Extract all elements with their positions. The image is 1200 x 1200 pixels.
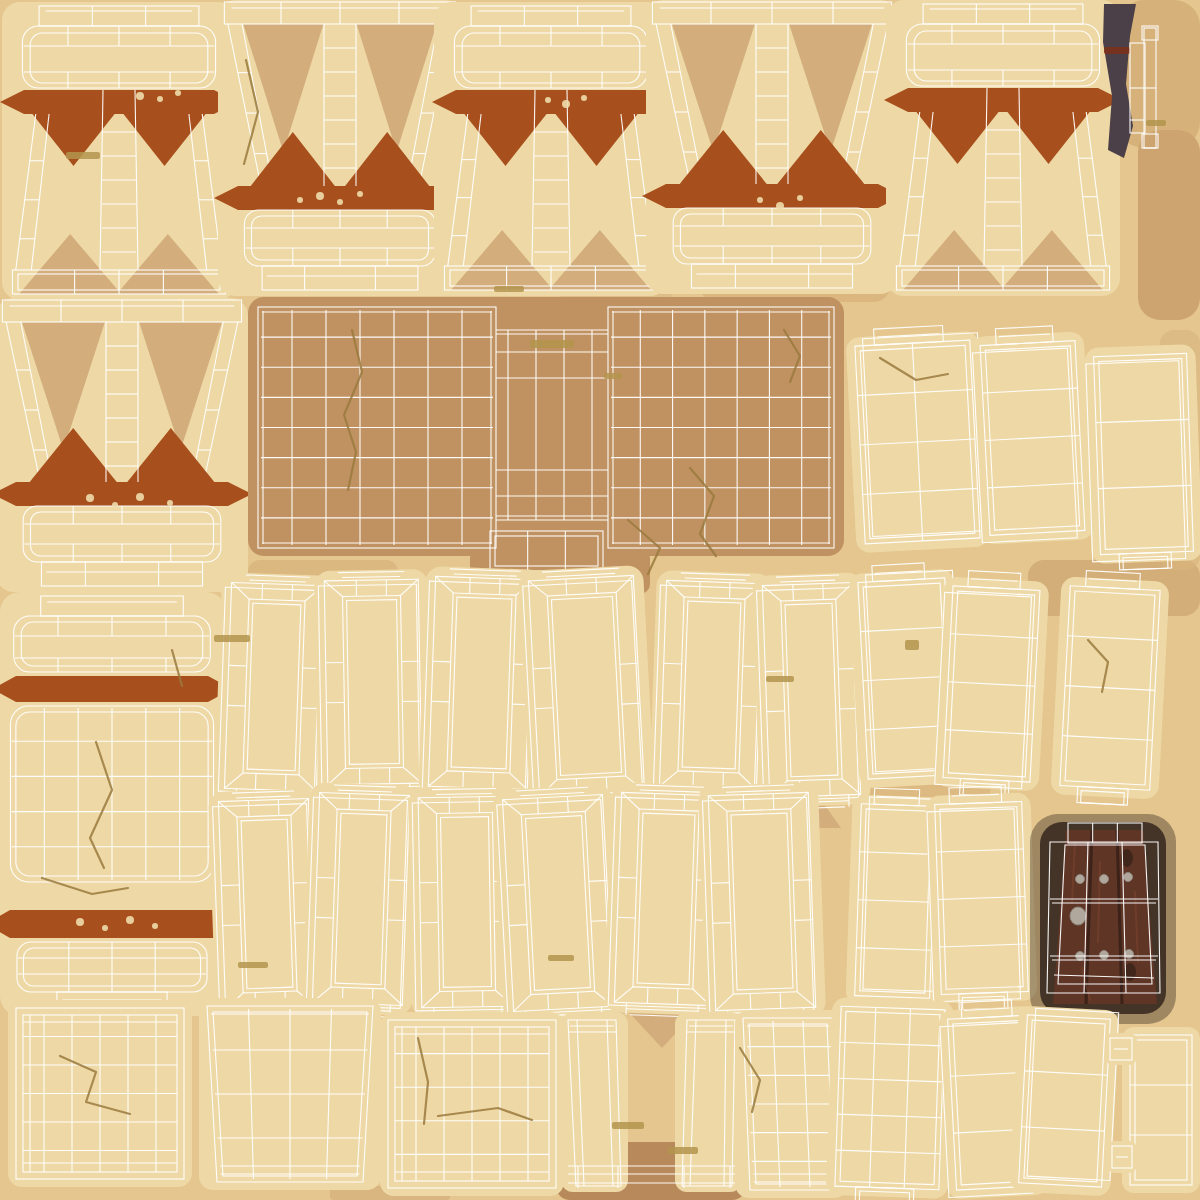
stud-icon (1070, 907, 1086, 925)
paint-speckle (102, 925, 108, 931)
wireframe-line (500, 579, 501, 595)
rust-band (0, 910, 238, 938)
paint-speckle (136, 493, 144, 501)
wireframe-line (248, 801, 249, 817)
grid-square-1 (8, 1000, 192, 1187)
paint-speckle (175, 90, 181, 96)
paint-speckle (126, 916, 134, 924)
texture-atlas-canvas (0, 0, 1200, 1200)
frame-group (698, 782, 826, 1023)
texture-dash (214, 635, 250, 642)
strip-1 (845, 324, 989, 554)
stud-icon (1076, 875, 1085, 884)
strip-group (933, 569, 1050, 798)
rust-band (0, 676, 232, 702)
rust-band (214, 186, 466, 210)
wireframe-line (677, 988, 678, 1004)
paint-speckle (76, 918, 84, 926)
wireframe-line (317, 877, 335, 878)
wireframe-line (793, 880, 811, 881)
wireframe-line (349, 794, 350, 810)
strip-group (925, 785, 1038, 1011)
texture-dash (668, 1147, 698, 1154)
wireframe-line (470, 578, 471, 594)
wireframe-line (713, 923, 731, 924)
wireframe-line (780, 992, 781, 1008)
texture-dash (1146, 120, 1166, 126)
strip-3 (1084, 344, 1200, 571)
strip-6 (1050, 569, 1170, 806)
island-fill (302, 782, 420, 1016)
frame-group (492, 784, 624, 1024)
paint-speckle (152, 923, 158, 929)
strip-group (1050, 569, 1170, 806)
paint-speckle (581, 95, 587, 101)
wireframe-line (223, 925, 241, 926)
rust-band (642, 184, 902, 208)
stud-icon (1124, 873, 1133, 882)
strip-group (970, 324, 1094, 545)
wireframe-line (221, 885, 239, 886)
pillar-base-3 (0, 298, 252, 592)
paint-speckle (357, 191, 363, 197)
texture-dash (66, 152, 100, 159)
pillar-capital-1 (0, 2, 238, 300)
wireframe-line (700, 582, 701, 598)
wireframe-line (664, 663, 682, 664)
wireframe-line (619, 877, 637, 878)
paint-speckle (776, 202, 784, 210)
grid-square-2 (380, 1012, 564, 1196)
frame-group (314, 569, 432, 797)
paint-speckle (136, 92, 144, 100)
wireframe-line (743, 795, 744, 811)
texture-dash (905, 640, 919, 650)
wireframe-line (315, 917, 333, 918)
paint-speckle (757, 197, 763, 203)
stud-icon (1100, 951, 1109, 960)
wireframe-line (617, 917, 635, 918)
wireframe-line (379, 795, 380, 811)
wireframe-line (389, 880, 407, 881)
island-fill (2, 2, 236, 300)
strip-11 (1009, 1005, 1120, 1196)
stud-icon (1100, 875, 1109, 884)
wireframe-line (227, 705, 245, 706)
texture-dash (238, 962, 268, 968)
wireframe-line (773, 794, 774, 810)
pillar-capital-2 (432, 2, 670, 296)
paint-speckle (86, 494, 94, 502)
wireframe-line (255, 773, 256, 789)
strip-group (1084, 344, 1200, 571)
rust-band (884, 88, 1122, 112)
rust-band (432, 90, 670, 114)
pillar-capital-3 (884, 0, 1122, 296)
island-fill (314, 569, 432, 795)
door-edge-trim (1104, 47, 1130, 54)
paint-speckle (316, 192, 324, 200)
frame-10 (492, 784, 624, 1024)
pillar-base-1 (214, 0, 466, 296)
pillar-base-2 (642, 0, 902, 294)
frame-8 (302, 782, 420, 1018)
paint-speckle (337, 199, 343, 205)
wireframe-line (278, 800, 279, 816)
island-fill (0, 592, 226, 1016)
wireframe-line (662, 703, 680, 704)
background-patch (1138, 130, 1200, 320)
wireframe-line (433, 661, 451, 662)
wireframe-line (767, 711, 785, 712)
strip-5 (933, 569, 1050, 798)
strip-2 (970, 324, 1094, 545)
texture-dash (604, 373, 622, 379)
paint-speckle (112, 502, 118, 508)
wireframe-line (765, 671, 783, 672)
tab-panel (1105, 1027, 1200, 1193)
strip-group (825, 997, 954, 1200)
wireframe-line (795, 920, 813, 921)
wireframe-line (229, 665, 247, 666)
wireframe-line (730, 583, 731, 599)
wireframe-line (493, 772, 494, 788)
island-fill (1009, 1005, 1120, 1196)
paint-speckle (297, 197, 303, 203)
frame-group (302, 782, 420, 1018)
wireframe-line (262, 584, 263, 600)
wireframe-line (654, 794, 655, 810)
wireframe-line (387, 920, 405, 921)
uv-wireframe-overlay (0, 0, 1200, 1200)
texture-dash (612, 1122, 644, 1129)
wireframe-line (292, 585, 293, 601)
wireframe-line (463, 771, 464, 787)
wood-door (1030, 814, 1176, 1024)
paint-speckle (562, 100, 570, 108)
paint-speckle (157, 96, 163, 102)
texture-dash (766, 676, 794, 682)
trapezoid-panel-1 (199, 998, 381, 1190)
wireframe-line (750, 993, 751, 1009)
frame-group (518, 565, 655, 809)
strip-9 (825, 997, 954, 1200)
paint-speckle (167, 500, 173, 506)
texture-dash (530, 340, 574, 348)
wireframe-line (684, 795, 685, 811)
frame-12 (698, 782, 826, 1023)
texture-dash (548, 955, 574, 961)
strip-group (1009, 1005, 1120, 1196)
barrel-pillar (0, 592, 238, 1016)
wireframe-line (840, 708, 858, 709)
wireframe-line (647, 987, 648, 1003)
paint-speckle (797, 195, 803, 201)
rust-band (0, 90, 238, 114)
wireframe-line (285, 774, 286, 790)
frame-4 (518, 565, 655, 809)
texture-dash (494, 286, 524, 292)
rust-band (0, 482, 252, 506)
wireframe-line (431, 701, 449, 702)
wireframe-line (793, 585, 794, 601)
frame-2 (314, 569, 432, 797)
strip-8 (925, 785, 1038, 1011)
paint-speckle (545, 97, 551, 103)
wireframe-line (711, 883, 729, 884)
stud-icon (1125, 950, 1134, 959)
wireframe-line (830, 779, 831, 795)
stone-panel-fill (248, 297, 844, 556)
strip-group (845, 324, 989, 554)
wireframe-line (823, 584, 824, 600)
